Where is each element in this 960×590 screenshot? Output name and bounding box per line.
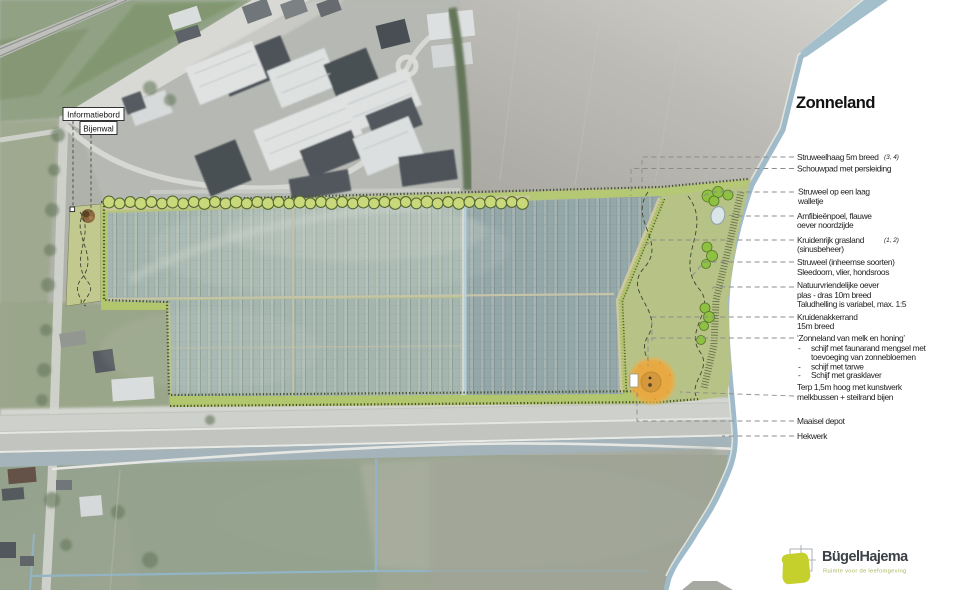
svg-text:Maaisel depot: Maaisel depot bbox=[797, 416, 846, 426]
svg-text:Bijenwal: Bijenwal bbox=[83, 124, 114, 133]
svg-text:Zonneland: Zonneland bbox=[796, 94, 875, 112]
svg-text:Hekwerk: Hekwerk bbox=[797, 431, 828, 441]
svg-text:‘Zonneland van melk en honing’: ‘Zonneland van melk en honing’ bbox=[797, 333, 905, 343]
svg-text:(1, 2): (1, 2) bbox=[884, 237, 899, 244]
svg-text:Sleedoorn, vlier, hondsroos: Sleedoorn, vlier, hondsroos bbox=[797, 267, 889, 277]
svg-text:Struweel op een laag: Struweel op een laag bbox=[798, 187, 870, 197]
svg-text:Struweel (inheemse soorten): Struweel (inheemse soorten) bbox=[797, 257, 895, 267]
svg-text:oever noordzijde: oever noordzijde bbox=[797, 220, 854, 230]
svg-text:Schouwpad met persleiding: Schouwpad met persleiding bbox=[797, 164, 892, 174]
svg-text:Taludhelling is variabel, max.: Taludhelling is variabel, max. 1:5 bbox=[797, 299, 907, 309]
svg-text:(3, 4): (3, 4) bbox=[884, 154, 899, 161]
svg-text:Terp 1,5m hoog met kunstwerk: Terp 1,5m hoog met kunstwerk bbox=[797, 382, 903, 392]
svg-text:Ruimte voor de leefomgeving: Ruimte voor de leefomgeving bbox=[823, 569, 907, 575]
svg-text:Informatiebord: Informatiebord bbox=[67, 110, 120, 119]
svg-text:BügelHajema: BügelHajema bbox=[822, 549, 909, 565]
svg-text:melkbussen + steilrand bijen: melkbussen + steilrand bijen bbox=[797, 392, 894, 402]
svg-text:walletje: walletje bbox=[797, 196, 824, 206]
svg-text:15m breed: 15m breed bbox=[797, 321, 835, 331]
svg-text:Struweelhaag 5m breed: Struweelhaag 5m breed bbox=[797, 152, 879, 162]
svg-text:Natuurvriendelijke oever: Natuurvriendelijke oever bbox=[797, 280, 879, 290]
svg-text:Schijf met grasklaver: Schijf met grasklaver bbox=[811, 370, 882, 380]
svg-text:toevoeging van zonnebloemen: toevoeging van zonnebloemen bbox=[811, 352, 916, 362]
svg-text:(sinusbeheer): (sinusbeheer) bbox=[797, 244, 844, 254]
